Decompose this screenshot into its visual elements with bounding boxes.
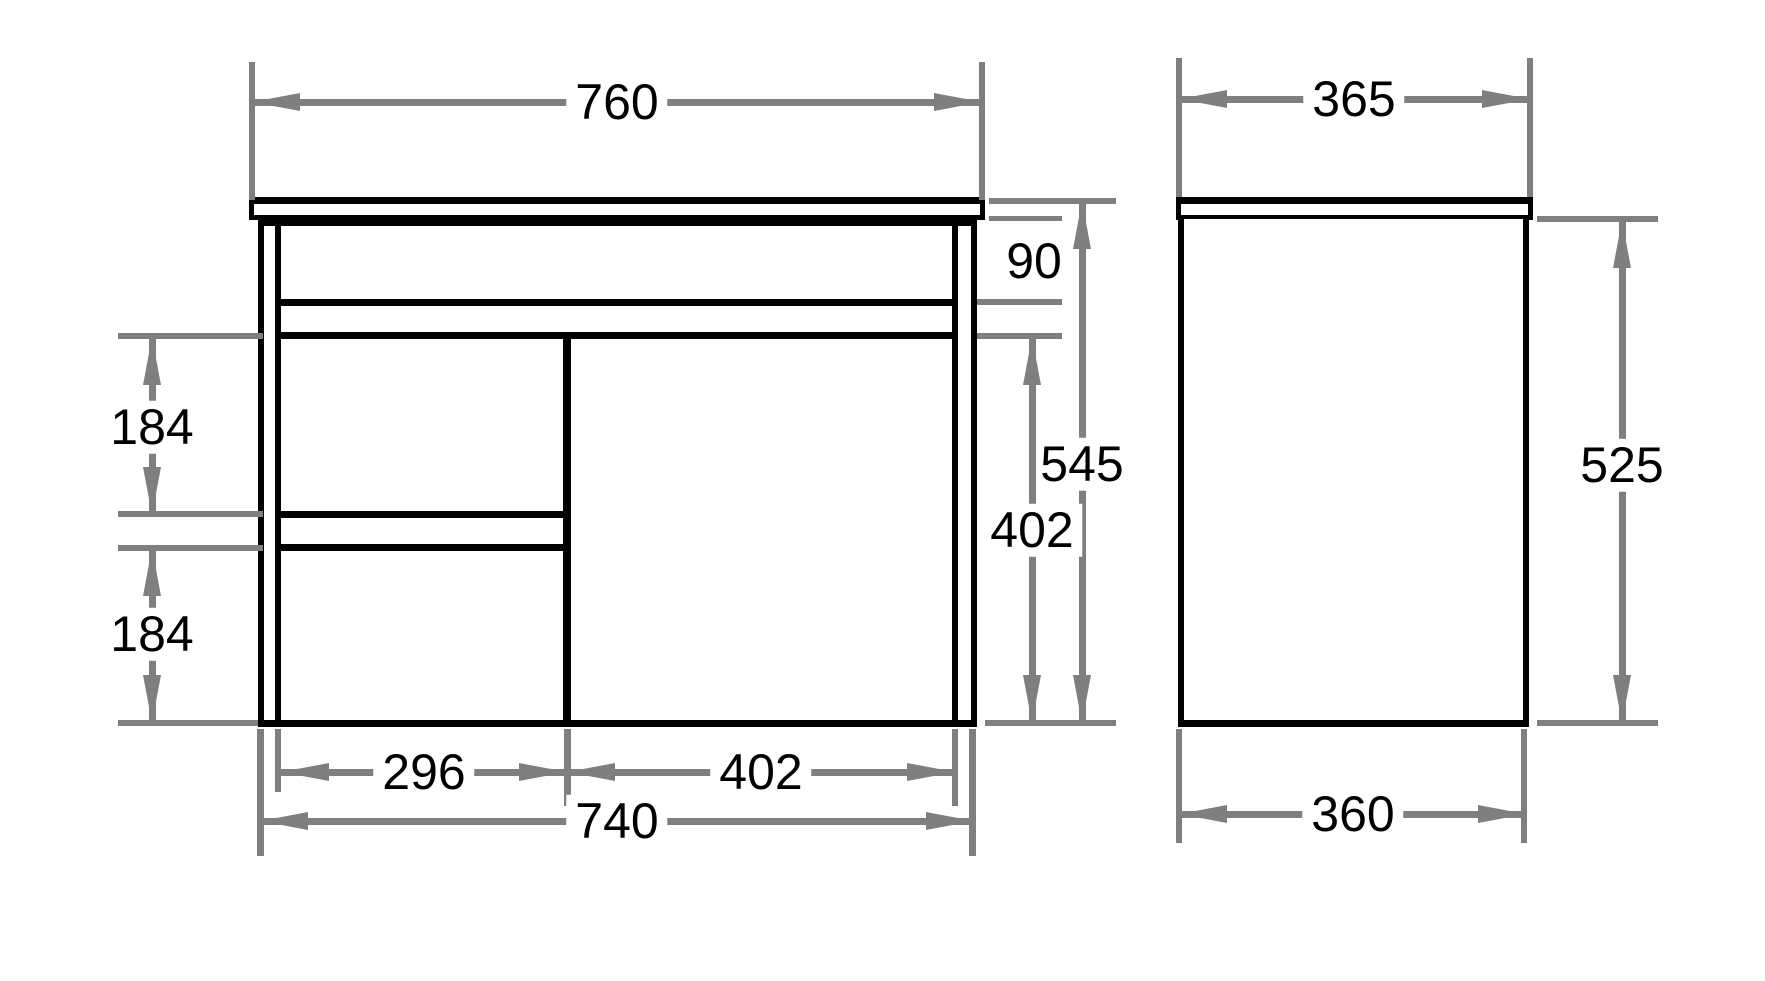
dim-90-ext-countertop-bottom <box>989 216 1062 221</box>
dim-740-arrowhead-left-icon <box>260 812 308 830</box>
dim-402b-arrowhead-right-icon <box>907 763 955 781</box>
dim-90-ext-countertop-top <box>989 198 1116 204</box>
dim-90-ext-apron-bottom <box>977 299 1062 305</box>
front-fronts-top-line <box>281 332 952 339</box>
dim-side-body-height-label: 525 <box>1571 439 1672 492</box>
front-countertop <box>249 197 985 220</box>
dim-184b-arrowhead-down-icon <box>143 675 161 723</box>
dim-525-arrowhead-up-icon <box>1613 220 1631 268</box>
dim-front-door-height-label: 402 <box>981 504 1082 557</box>
dim-760-ext-left <box>249 62 255 200</box>
dim-front-drawer-bank-width-label: 296 <box>373 746 474 799</box>
dim-525-ext-bottom <box>1537 720 1658 726</box>
dim-760-arrowhead-left-icon <box>252 93 300 111</box>
dim-360-ext-right <box>1521 729 1527 843</box>
dim-525-arrowhead-down-icon <box>1613 675 1631 723</box>
dim-side-bottom-depth-label: 360 <box>1302 788 1403 841</box>
dim-360-arrowhead-left-icon <box>1179 805 1227 823</box>
front-right-panel-outer-line <box>971 219 977 727</box>
dim-front-door-width-label: 402 <box>710 746 811 799</box>
dim-760-arrowhead-right-icon <box>934 93 982 111</box>
dim-365-arrowhead-right-icon <box>1482 90 1530 108</box>
dim-740-ext-right <box>969 729 976 856</box>
dim-ext-front-bottom-left <box>118 720 258 726</box>
dim-525-ext-top <box>1537 216 1658 222</box>
dim-front-lower-drawer-label: 184 <box>101 608 202 661</box>
dim-front-carcass-height-label: 545 <box>1031 438 1132 491</box>
dim-360-ext-left <box>1176 729 1182 843</box>
dim-545-arrowhead-up-icon <box>1073 201 1091 249</box>
dim-front-top-width-label: 760 <box>566 76 667 129</box>
dim-760-ext-right <box>979 62 985 200</box>
dim-545-arrowhead-down-icon <box>1073 675 1091 723</box>
dim-front-upper-drawer-label: 184 <box>101 401 202 454</box>
dim-365-ext-left <box>1176 58 1182 197</box>
front-left-panel-outer-line <box>258 219 264 727</box>
dim-402-arrowhead-down-icon <box>1023 675 1041 723</box>
dim-184a-arrowhead-up-icon <box>143 337 161 385</box>
dim-184a-arrowhead-down-icon <box>143 467 161 515</box>
dim-184b-ext-top <box>118 545 263 551</box>
dim-296-ext-left <box>275 729 281 792</box>
front-drawer2-top-line <box>281 544 567 551</box>
front-apron-bottom-line <box>281 299 952 306</box>
dim-740-arrowhead-right-icon <box>926 812 974 830</box>
dim-front-cabinet-width-label: 740 <box>566 795 667 848</box>
dim-402-ext-fronts-top <box>977 333 1062 339</box>
front-drawer1-bottom-line <box>281 511 567 518</box>
front-left-panel-inner-line <box>275 222 281 724</box>
dim-side-top-depth-label: 365 <box>1303 73 1404 126</box>
vanity-dimension-drawing: 760 90 545 402 184 184 296 402 740 <box>0 0 1765 981</box>
dim-740-ext-left <box>257 729 264 856</box>
dim-184a-ext-bottom <box>118 511 263 517</box>
dim-ext-front-bottom-right <box>985 720 1116 726</box>
front-right-panel-inner-line <box>952 222 958 724</box>
dim-296-arrowhead-right-icon <box>519 763 567 781</box>
dim-365-arrowhead-left-icon <box>1179 90 1227 108</box>
dim-front-apron-height-label: 90 <box>997 235 1071 288</box>
dim-184a-ext-top <box>118 333 263 339</box>
side-body <box>1178 219 1529 727</box>
dim-360-arrowhead-right-icon <box>1478 805 1526 823</box>
front-bottom-line <box>258 720 977 727</box>
front-top-rail-line <box>258 220 977 226</box>
dim-184b-arrowhead-up-icon <box>143 548 161 596</box>
dim-365-ext-right <box>1527 58 1533 197</box>
dim-402b-arrowhead-left-icon <box>567 763 615 781</box>
front-drawer-door-divider-line <box>563 332 571 727</box>
dim-402-arrowhead-up-icon <box>1023 337 1041 385</box>
side-countertop <box>1176 197 1533 220</box>
dim-296-arrowhead-left-icon <box>281 763 329 781</box>
